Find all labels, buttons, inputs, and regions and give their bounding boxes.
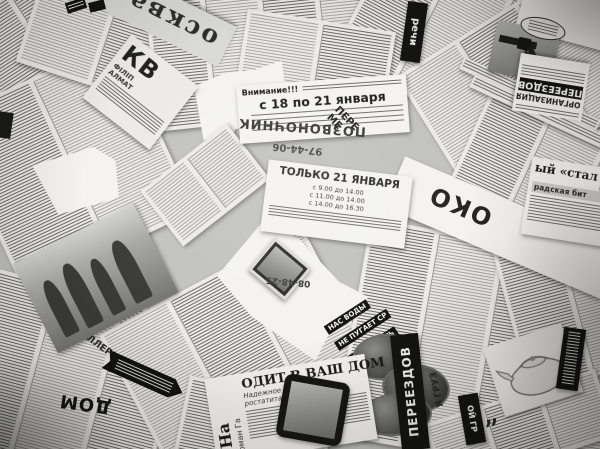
newspaper-collage-photo: осква в КВ ФІЛІП АЛМАТ Внимание!!! с 18 … xyxy=(0,0,600,449)
card-photo xyxy=(283,381,343,439)
phone-fragment: 97-44-06 xyxy=(251,142,322,163)
phone-number: 97-44-06 xyxy=(272,140,323,156)
org-pereezdov-ad: ОРГАНИЗАЦИЯ ПЕРЕЕЗДОВ xyxy=(512,53,590,121)
photo-card xyxy=(275,373,351,447)
stal-article-scrap: ый «стал радская бит xyxy=(520,157,600,248)
